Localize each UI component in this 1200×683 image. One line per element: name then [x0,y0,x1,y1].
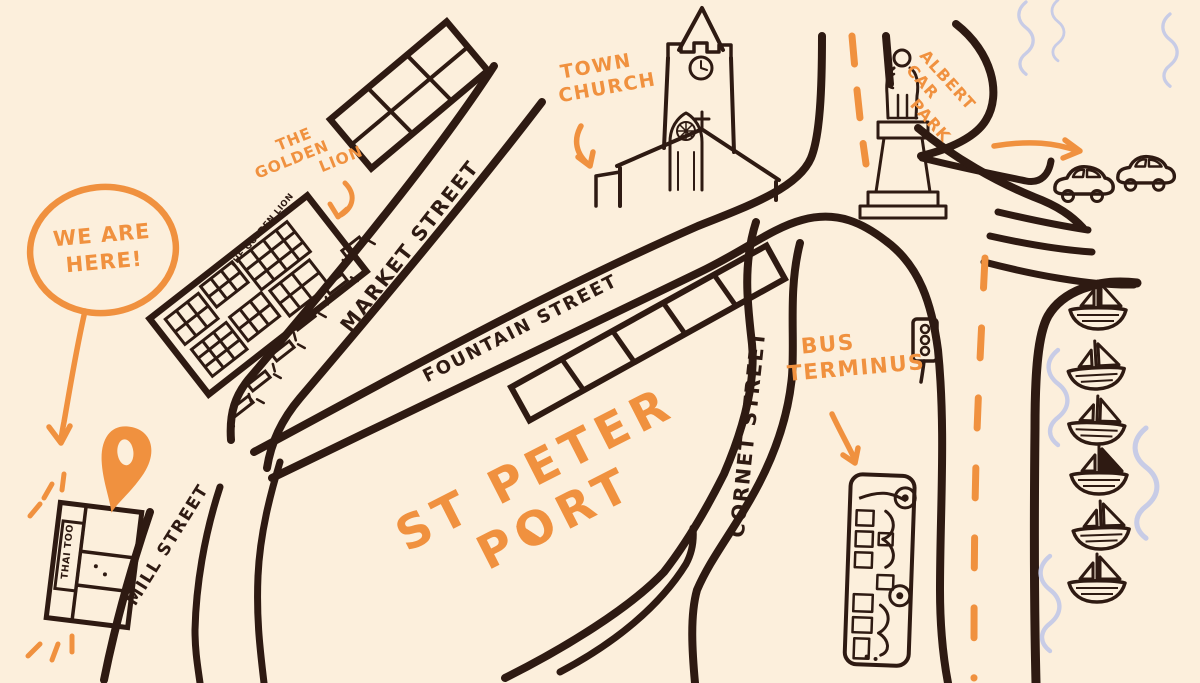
bubble-tail-arrow [61,311,85,442]
water-wave-icon [1049,350,1068,445]
church-building-icon [596,8,779,206]
we-are-here-bubble-text: WE ARE HERE! [42,217,164,282]
water-wave-icon [1135,428,1157,538]
sailboat-icon [1067,340,1125,391]
filled-sail [1102,449,1122,471]
location-pin-icon [88,421,157,518]
water-wave-icon [1052,0,1064,61]
road-hatch-2 [990,236,1092,252]
sailboat-icon [1069,554,1125,602]
road-fountain-upper [254,36,822,452]
car-park-arrow [994,143,1078,151]
sailboat-icon [1068,395,1126,445]
water-wave-icon [1163,14,1177,86]
bus-icon [844,474,916,666]
dashed-line-top [852,36,866,164]
water-wave-icon [1019,2,1033,74]
hand-drawn-map: WE ARE HERE! THE GOLDEN LION THE GOLDEN … [0,0,1200,683]
dashed-line-harbour [974,258,985,678]
sailboat-icon [1072,500,1130,550]
road-south [258,462,280,683]
road-hatch-3 [984,262,1134,285]
road-mill-right [195,487,220,683]
water-wave-icon [1041,556,1060,651]
harbour-boats [1067,281,1130,602]
map-drawing-layer [0,0,1200,683]
car-icon [1118,157,1175,191]
car-icon [1055,167,1113,202]
